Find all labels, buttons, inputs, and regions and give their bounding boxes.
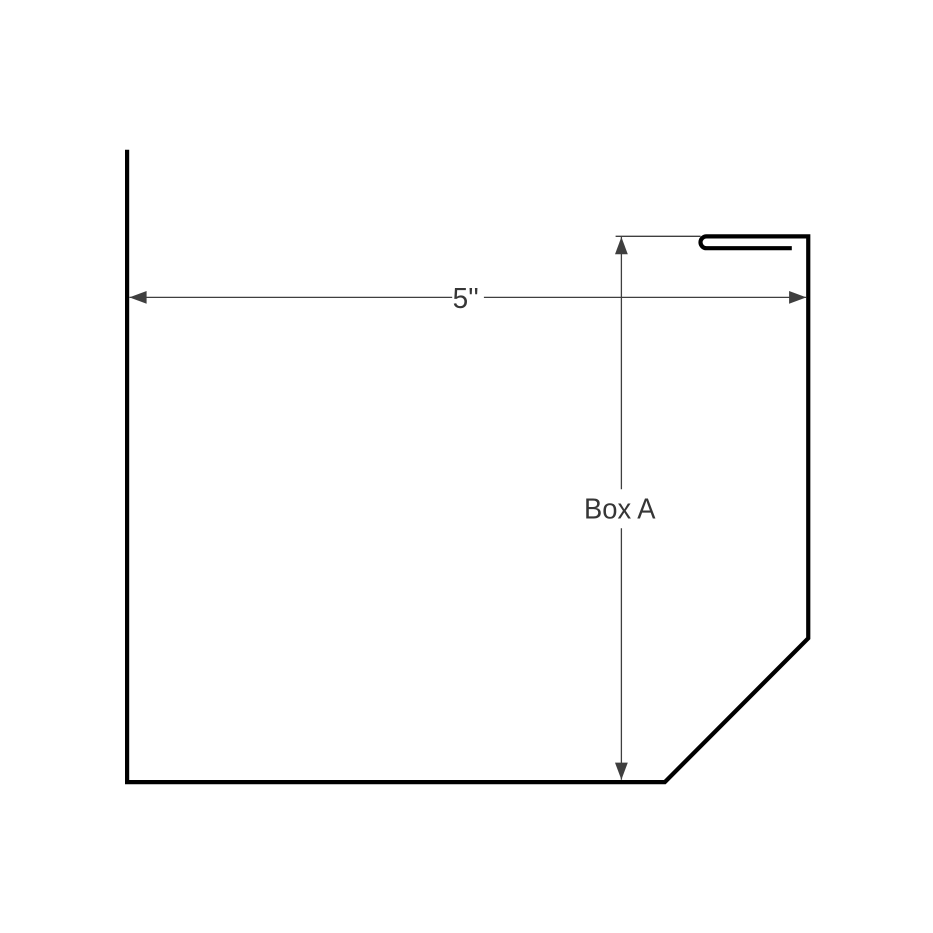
svg-text:5'': 5'' — [453, 283, 479, 315]
svg-text:Box A: Box A — [584, 494, 656, 526]
